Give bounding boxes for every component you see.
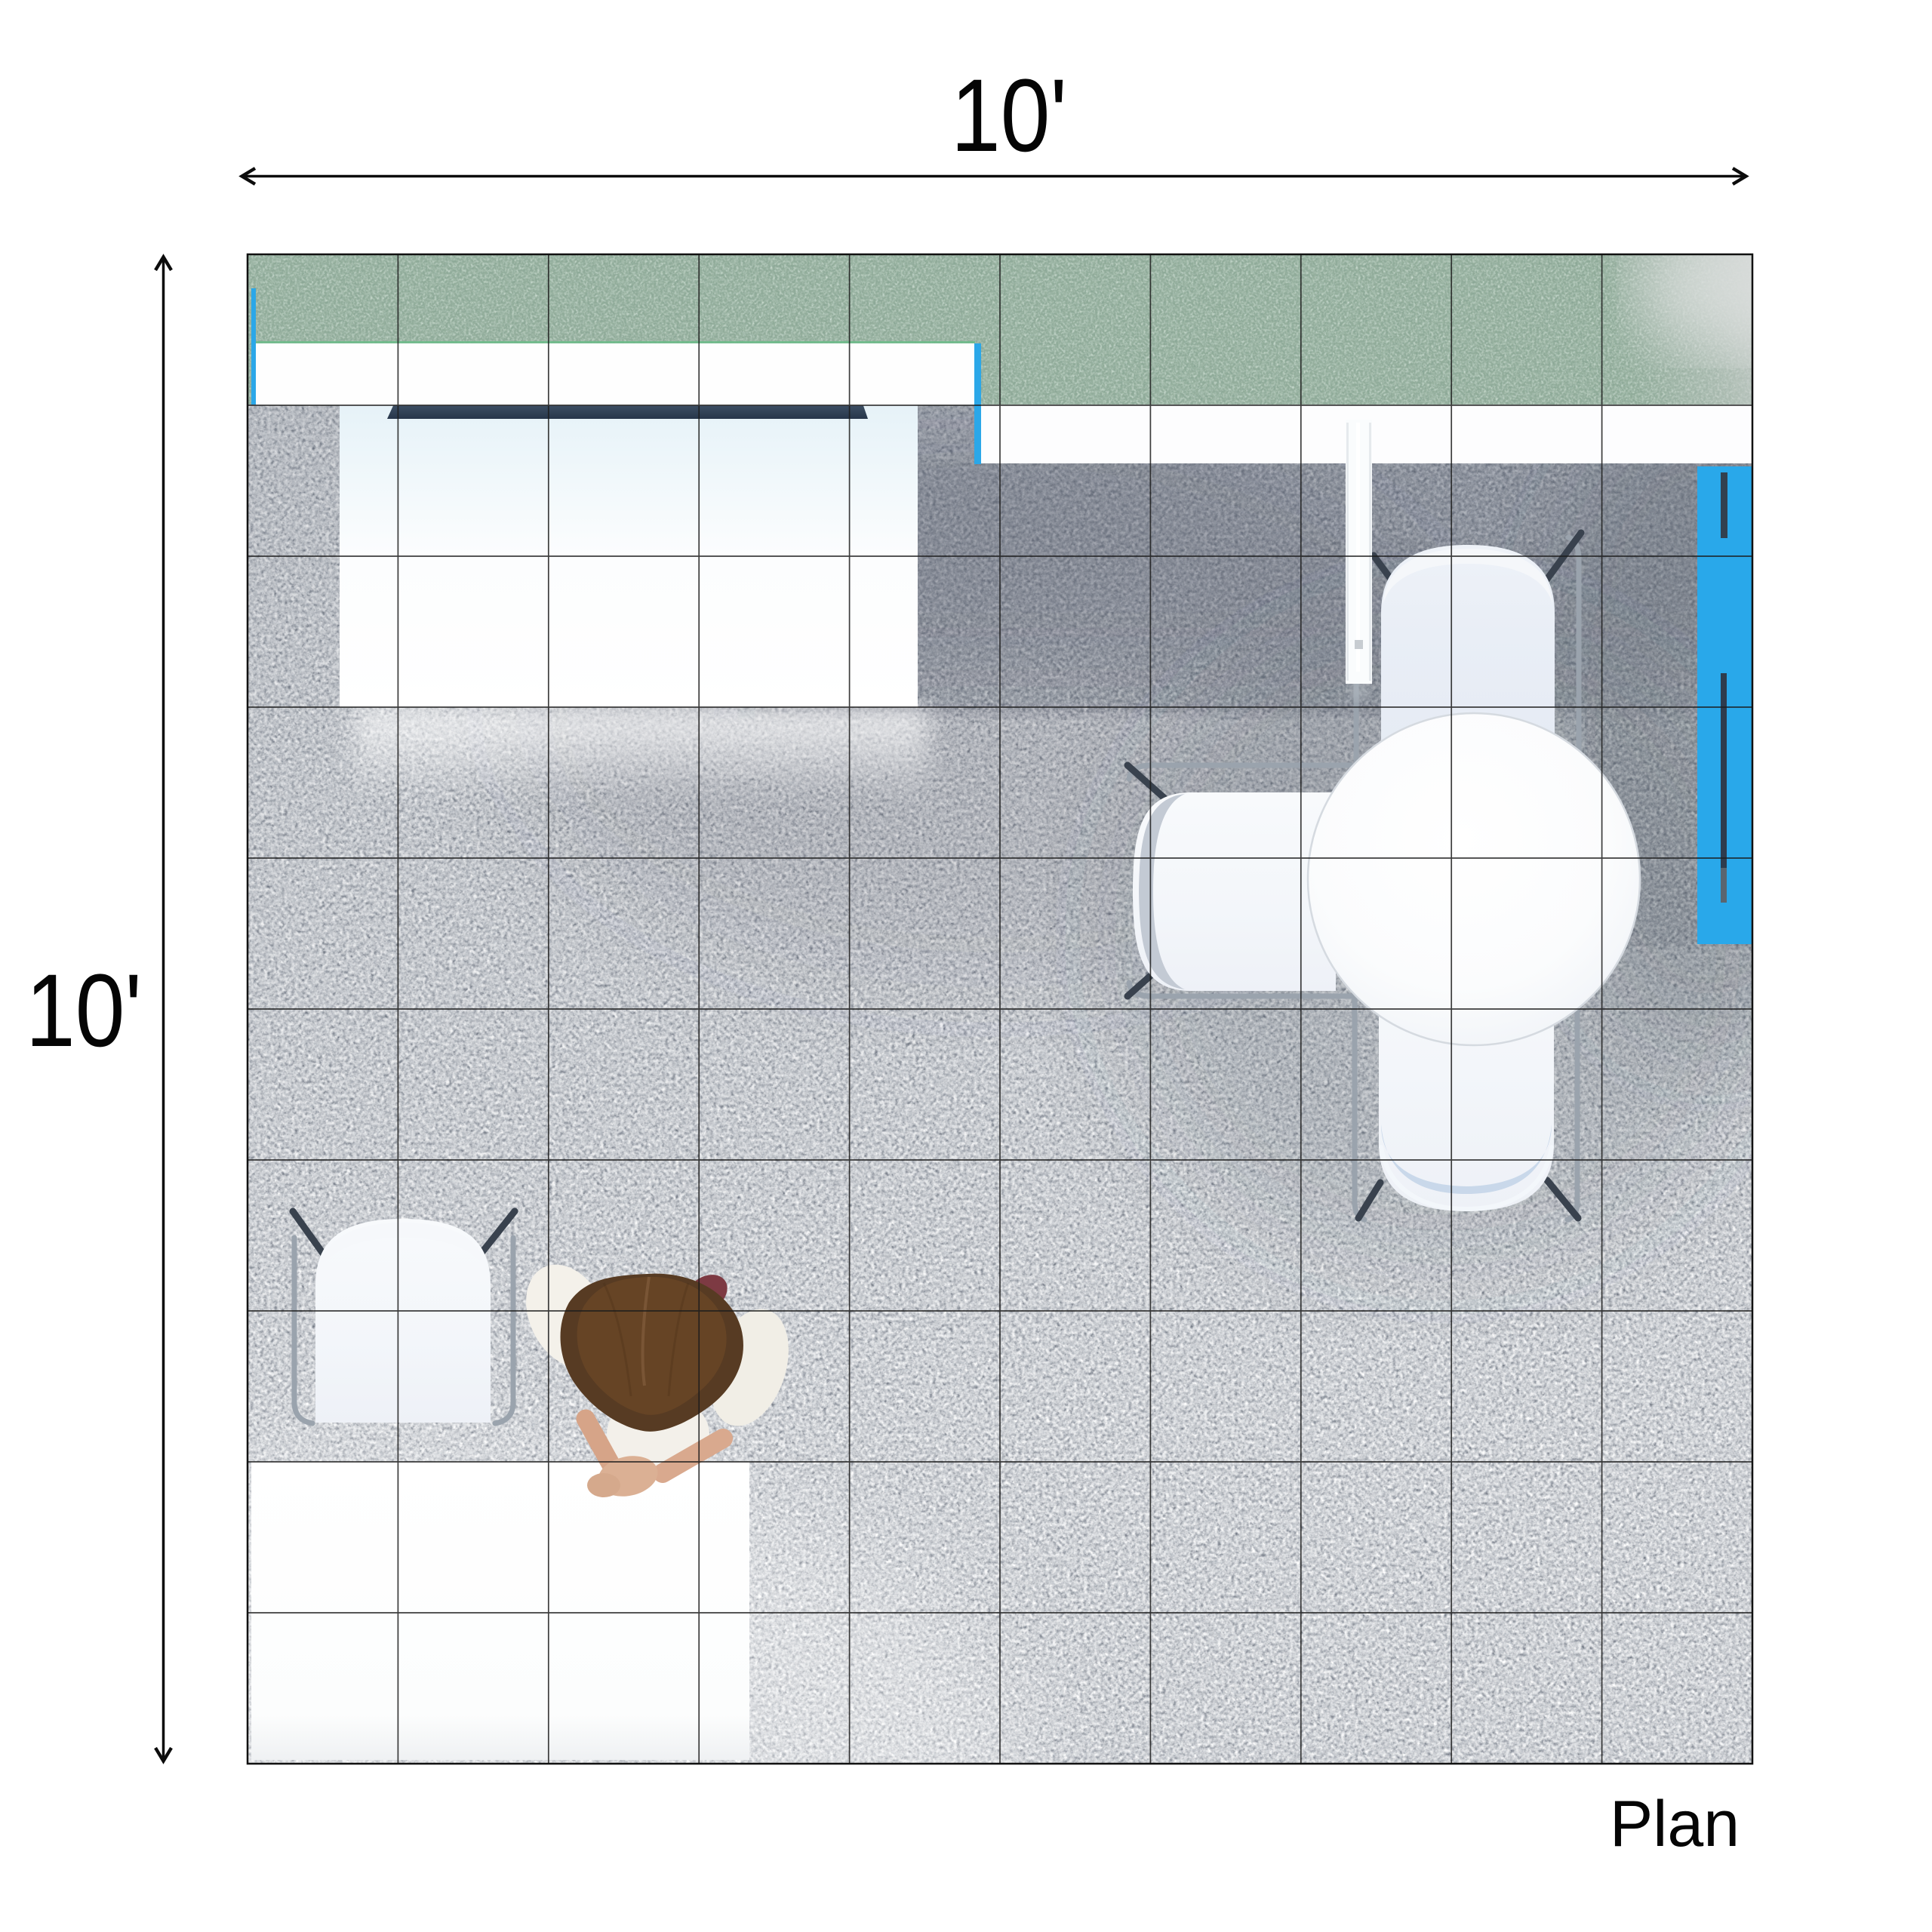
svg-text:10': 10' (26, 953, 142, 1069)
svg-text:Plan: Plan (1610, 1788, 1740, 1860)
svg-text:10': 10' (951, 58, 1067, 174)
